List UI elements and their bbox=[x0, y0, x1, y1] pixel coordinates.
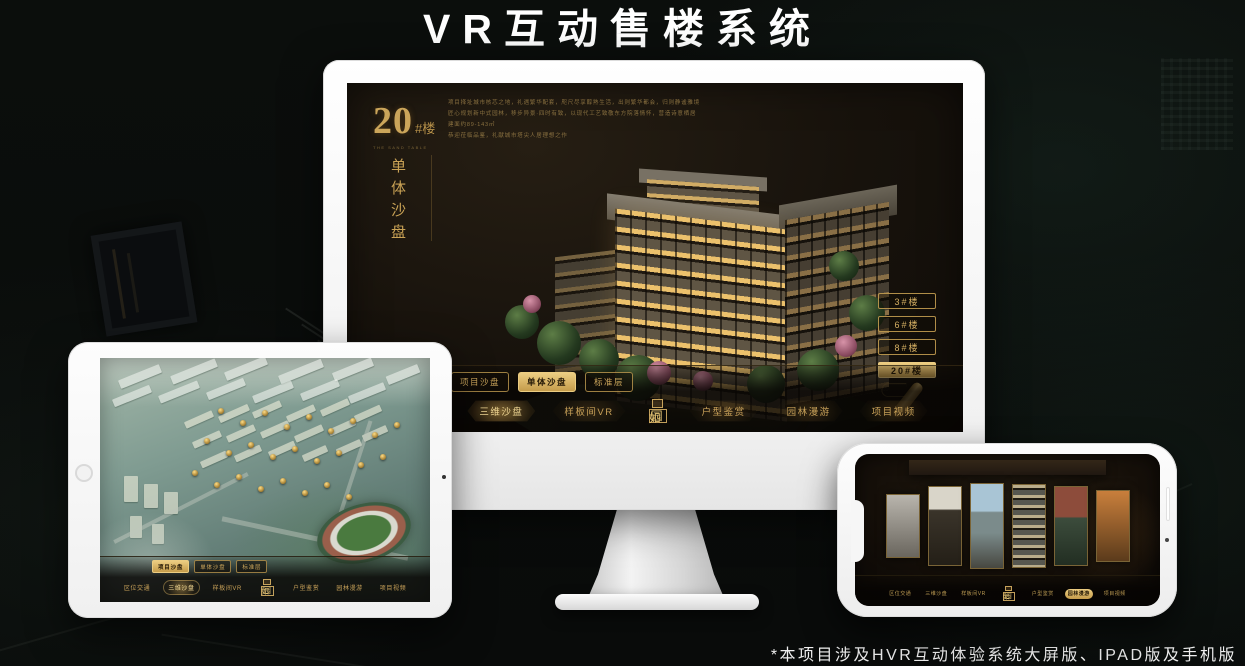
building-marker[interactable] bbox=[214, 482, 220, 488]
gallery-panel[interactable] bbox=[886, 494, 920, 558]
building-marker[interactable] bbox=[314, 458, 320, 464]
tablet-navbar: 项目沙盘 单体沙盘 标准层 区位交通 三维沙盘 样板间VR 如园 户型鉴赏 园林… bbox=[100, 556, 430, 602]
sub-tabs: 项目沙盘 单体沙盘 标准层 bbox=[451, 372, 633, 392]
speaker-icon bbox=[1166, 487, 1170, 521]
building-marker[interactable] bbox=[270, 454, 276, 460]
building-marker[interactable] bbox=[372, 432, 378, 438]
tab-project-sandtable[interactable]: 项目沙盘 bbox=[152, 560, 189, 573]
logo-char: 园 bbox=[261, 586, 274, 596]
background-road bbox=[161, 634, 418, 666]
building-marker[interactable] bbox=[346, 494, 352, 500]
phone-notch bbox=[851, 500, 864, 562]
sub-tabs: 项目沙盘 单体沙盘 标准层 bbox=[152, 560, 267, 573]
nav-item-showroom-vr[interactable]: 样板间VR bbox=[209, 581, 246, 594]
poster-canvas: VR互动售楼系统 20#楼 THE SAND TABLE 单体沙盘 项目择址城市… bbox=[0, 0, 1245, 666]
tab-project-sandtable[interactable]: 项目沙盘 bbox=[451, 372, 509, 392]
logo-char: 园 bbox=[649, 409, 667, 423]
gallery-panel[interactable] bbox=[928, 486, 962, 566]
heading-caption: THE SAND TABLE bbox=[373, 145, 463, 150]
building-marker[interactable] bbox=[284, 424, 290, 430]
tab-standard-floor[interactable]: 标准层 bbox=[585, 372, 633, 392]
background-line bbox=[285, 308, 325, 335]
tablet-device: 项目沙盘 单体沙盘 标准层 区位交通 三维沙盘 样板间VR 如园 户型鉴赏 园林… bbox=[68, 342, 452, 618]
monitor-base bbox=[555, 594, 759, 610]
tree bbox=[829, 251, 859, 281]
gallery-panel[interactable] bbox=[970, 483, 1004, 569]
description-paragraph: 项目择址城市核芯之地，礼遇繁华配套，咫尺尽享醇熟生活，出则繁华都会，归则静谧雅境… bbox=[448, 98, 910, 142]
building-marker[interactable] bbox=[248, 442, 254, 448]
building-marker[interactable] bbox=[258, 486, 264, 492]
blossom-tree bbox=[835, 335, 857, 357]
courtyard-beam bbox=[909, 460, 1106, 475]
camera-icon bbox=[442, 475, 446, 479]
floor-button-6[interactable]: 6#楼 bbox=[878, 316, 936, 332]
building-marker[interactable] bbox=[302, 490, 308, 496]
nav-item-project-video[interactable]: 项目视频 bbox=[1101, 589, 1129, 599]
phone-screen: 区位交通 三维沙盘 样板间VR 如园 户型鉴赏 园林漫游 项目视频 bbox=[855, 454, 1160, 606]
building-marker[interactable] bbox=[350, 418, 356, 424]
nav-item-floorplans[interactable]: 户型鉴赏 bbox=[1029, 589, 1057, 599]
logo-char: 园 bbox=[1003, 592, 1015, 601]
main-nav: 区位交通 三维沙盘 样板间VR 如园 户型鉴赏 园林漫游 项目视频 bbox=[879, 586, 1136, 601]
building-marker[interactable] bbox=[204, 438, 210, 444]
brand-logo: 如园 bbox=[255, 579, 280, 596]
home-button[interactable] bbox=[75, 464, 93, 482]
tab-single-sandtable[interactable]: 单体沙盘 bbox=[518, 372, 576, 392]
heading-vertical-text: 单体沙盘 bbox=[387, 158, 408, 258]
nav-item-location[interactable]: 区位交通 bbox=[886, 589, 914, 599]
floor-button-8[interactable]: 8#楼 bbox=[878, 339, 936, 355]
nav-item-garden-tour[interactable]: 园林漫游 bbox=[332, 581, 366, 594]
nav-item-3d-sandtable[interactable]: 三维沙盘 bbox=[922, 589, 950, 599]
building-number: 20 bbox=[373, 100, 413, 142]
main-nav: 区位交通 三维沙盘 样板间VR 如园 户型鉴赏 园林漫游 项目视频 bbox=[126, 579, 404, 596]
building-number-suffix: #楼 bbox=[415, 121, 435, 136]
nav-item-project-video[interactable]: 项目视频 bbox=[860, 398, 928, 424]
building-marker[interactable] bbox=[226, 450, 232, 456]
floor-button-3[interactable]: 3#楼 bbox=[878, 293, 936, 309]
tab-standard-floor[interactable]: 标准层 bbox=[236, 560, 267, 573]
building-marker[interactable] bbox=[324, 482, 330, 488]
tree bbox=[537, 321, 581, 365]
nav-item-location[interactable]: 区位交通 bbox=[120, 581, 154, 594]
nav-item-floorplans[interactable]: 户型鉴赏 bbox=[289, 581, 323, 594]
blossom-tree bbox=[523, 295, 541, 313]
gallery-panel[interactable] bbox=[1012, 484, 1046, 568]
nav-item-garden-tour[interactable]: 园林漫游 bbox=[1065, 589, 1093, 599]
nav-item-showroom-vr[interactable]: 样板间VR bbox=[552, 398, 625, 424]
brand-logo: 如园 bbox=[997, 586, 1021, 601]
nav-item-showroom-vr[interactable]: 样板间VR bbox=[958, 589, 988, 599]
brand-logo: 如园 bbox=[643, 399, 673, 423]
building-marker[interactable] bbox=[192, 470, 198, 476]
nav-item-3d-sandtable[interactable]: 三维沙盘 bbox=[163, 580, 199, 595]
building-marker[interactable] bbox=[336, 450, 342, 456]
nav-item-3d-sandtable[interactable]: 三维沙盘 bbox=[467, 398, 535, 424]
gallery-panels bbox=[855, 478, 1160, 574]
phone-navbar: 区位交通 三维沙盘 样板间VR 如园 户型鉴赏 园林漫游 项目视频 bbox=[855, 575, 1160, 606]
description-line: 建面约89-143㎡ bbox=[448, 120, 910, 131]
background-plaque bbox=[91, 221, 198, 336]
tab-single-sandtable[interactable]: 单体沙盘 bbox=[194, 560, 231, 573]
nav-item-project-video[interactable]: 项目视频 bbox=[376, 581, 410, 594]
seal-icon bbox=[263, 579, 271, 585]
building-marker[interactable] bbox=[218, 408, 224, 414]
building-marker[interactable] bbox=[262, 410, 268, 416]
building-marker[interactable] bbox=[380, 454, 386, 460]
building-marker[interactable] bbox=[280, 478, 286, 484]
nav-item-garden-tour[interactable]: 园林漫游 bbox=[775, 398, 843, 424]
background-buildings-texture bbox=[1161, 58, 1233, 150]
monitor-stand bbox=[587, 508, 725, 600]
building-marker[interactable] bbox=[394, 422, 400, 428]
page-title: VR互动售楼系统 bbox=[0, 0, 1245, 56]
description-line: 匠心规划新中式园林，移步异景·四时有致，以现代工艺致敬东方院落情怀，营造诗意栖居 bbox=[448, 109, 910, 120]
description-line: 项目择址城市核芯之地，礼遇繁华配套，咫尺尽享醇熟生活，出则繁华都会，归则静谧雅境 bbox=[448, 98, 910, 109]
building-marker[interactable] bbox=[236, 474, 242, 480]
heading-divider bbox=[431, 155, 432, 241]
description-line: 恭迎莅临品鉴，礼献城市塔尖人居理想之作 bbox=[448, 131, 910, 142]
building-marker[interactable] bbox=[328, 428, 334, 434]
building-marker[interactable] bbox=[306, 414, 312, 420]
gallery-panel[interactable] bbox=[1096, 490, 1130, 562]
seal-icon bbox=[652, 399, 663, 408]
building-marker[interactable] bbox=[358, 462, 364, 468]
phone-device: 区位交通 三维沙盘 样板间VR 如园 户型鉴赏 园林漫游 项目视频 bbox=[837, 443, 1177, 617]
tablet-screen: 项目沙盘 单体沙盘 标准层 区位交通 三维沙盘 样板间VR 如园 户型鉴赏 园林… bbox=[100, 358, 430, 602]
camera-icon bbox=[1165, 538, 1169, 542]
building-marker[interactable] bbox=[292, 446, 298, 452]
seal-icon bbox=[1005, 586, 1012, 591]
building-marker[interactable] bbox=[240, 420, 246, 426]
nav-item-floorplans[interactable]: 户型鉴赏 bbox=[690, 398, 758, 424]
footnote: *本项目涉及HVR互动体验系统大屏版、IPAD版及手机版 bbox=[771, 641, 1237, 665]
gallery-panel[interactable] bbox=[1054, 486, 1088, 566]
